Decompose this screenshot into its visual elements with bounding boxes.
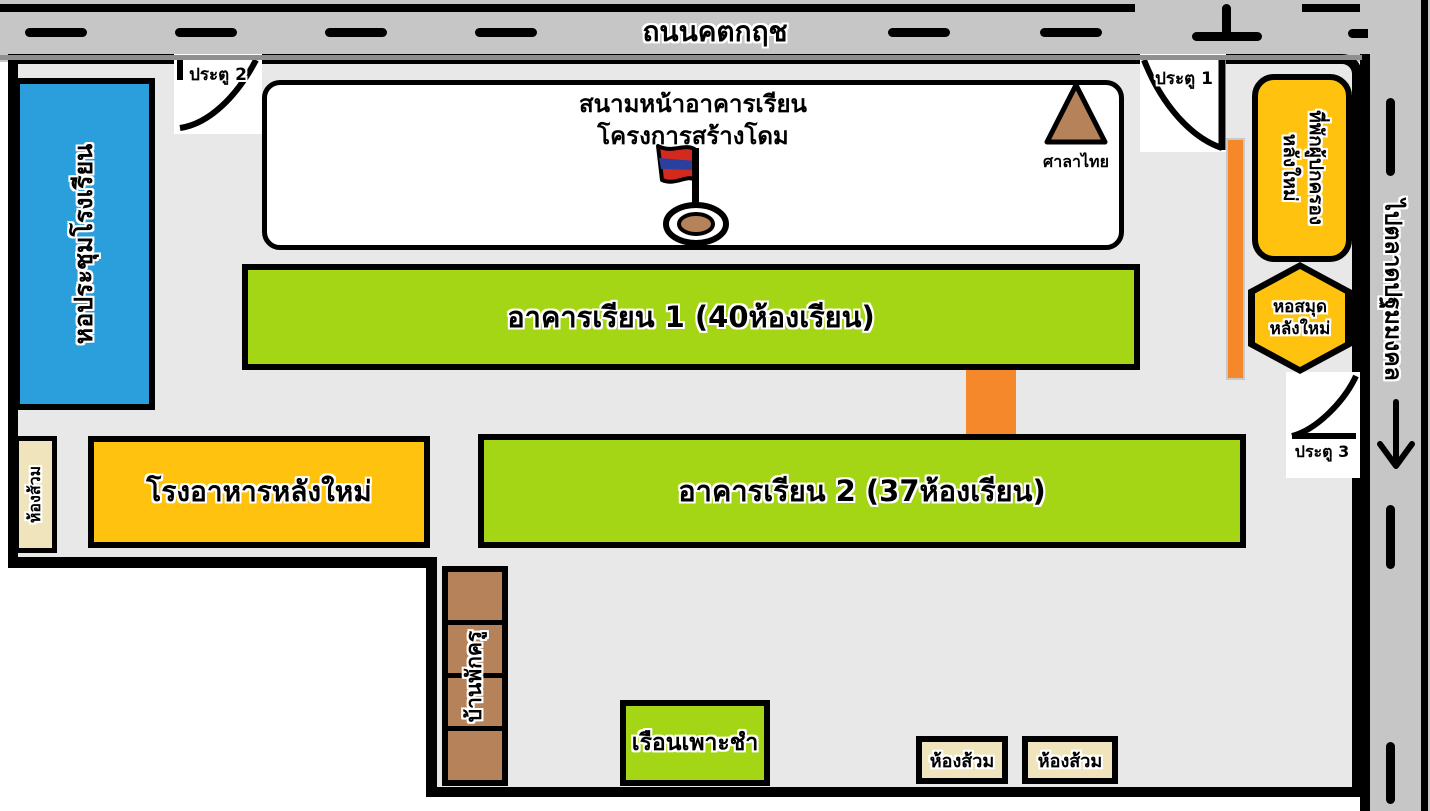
- toilet-bottom-right: ห้องส้วม: [1022, 736, 1118, 784]
- road-right-inner-border: [1360, 54, 1370, 811]
- parents-residence-label: ที่พักผู้ปกครอง หลังใหม่: [1276, 111, 1327, 226]
- parents-residence-line1: ที่พักผู้ปกครอง: [1302, 111, 1328, 226]
- flag-icon: [648, 136, 744, 246]
- lane-marking: [1222, 4, 1231, 36]
- library-line1: หอสมุด: [1270, 296, 1331, 318]
- parents-residence: ที่พักผู้ปกครอง หลังใหม่: [1252, 74, 1352, 262]
- road-right-name: ไปตลาดปฐมมงคล: [1364, 190, 1422, 390]
- down-arrow-icon: [1374, 398, 1418, 482]
- pavilion-label: ศาลาไทย: [1043, 150, 1109, 175]
- toilet-bottom-left: ห้องส้วม: [916, 736, 1008, 784]
- nursery: เรือนเพาะชำ: [620, 700, 770, 786]
- toilet-left: ห้องส้วม: [14, 436, 57, 553]
- road-bottom-edge: [0, 55, 1362, 60]
- teacher-house-name: บ้านพักครู: [448, 572, 502, 780]
- gate-2-name: ประตู 2: [176, 62, 260, 86]
- road-top-border: [0, 4, 1135, 12]
- field-name-line1: สนามหน้าอาคารเรียน: [262, 88, 1124, 118]
- teacher-house-label: บ้านพักครู: [459, 630, 492, 721]
- pavilion-name: ศาลาไทย: [1026, 150, 1126, 174]
- lane-marking: [1386, 742, 1395, 804]
- lane-marking: [1040, 28, 1102, 37]
- gate-3-name: ประตู 3: [1286, 440, 1358, 464]
- gate-3-label: ประตู 3: [1295, 440, 1349, 465]
- toilet-left-label: ห้องส้วม: [23, 466, 48, 523]
- gate-1-name: ประตู 1: [1144, 66, 1224, 90]
- library-fill: หอสมุด หลังใหม่: [1255, 269, 1345, 367]
- toilet-bottom-left-label: ห้องส้วม: [930, 746, 994, 775]
- lane-marking: [1386, 505, 1395, 569]
- nursery-label: เรือนเพาะชำ: [632, 725, 759, 761]
- connector-walkway: [966, 362, 1016, 442]
- teacher-house: บ้านพักครู: [442, 566, 508, 786]
- road-right-outer-border: [1421, 0, 1428, 811]
- boundary-step-top: [8, 557, 437, 568]
- auditorium: หอประชุมโรงเรียน: [14, 78, 155, 410]
- lane-marking: [325, 28, 387, 37]
- pavilion-icon: [1042, 80, 1110, 148]
- road-top-name: ถนนคตกฤช: [500, 12, 930, 52]
- boundary-step-right: [426, 557, 437, 797]
- library-line2: หลังใหม่: [1270, 318, 1331, 340]
- building-2-label: อาคารเรียน 2 (37ห้องเรียน): [678, 468, 1046, 514]
- road-right-label: ไปตลาดปฐมมงคล: [1375, 199, 1411, 380]
- outside-area: [0, 567, 431, 811]
- school-campus-map: ถนนคตกฤช ไปตลาดปฐมมงคล ประตู 2 ประตู 1: [0, 0, 1430, 811]
- parents-residence-line2: หลังใหม่: [1276, 111, 1302, 226]
- gate-2-label: ประตู 2: [189, 61, 247, 88]
- lane-marking: [175, 28, 237, 37]
- cafeteria: โรงอาหารหลังใหม่: [88, 436, 430, 548]
- library-label: หอสมุด หลังใหม่: [1270, 296, 1331, 340]
- toilet-bottom-right-label: ห้องส้วม: [1038, 746, 1102, 775]
- building-1-label: อาคารเรียน 1 (40ห้องเรียน): [507, 294, 875, 340]
- road-top-label: ถนนคตกฤช: [642, 10, 787, 54]
- walkway-strip: [1228, 140, 1243, 378]
- road-top-border: [1302, 4, 1360, 12]
- lane-marking: [25, 28, 87, 37]
- auditorium-label: หอประชุมโรงเรียน: [65, 144, 105, 344]
- lane-marking: [1386, 98, 1395, 176]
- building-1: อาคารเรียน 1 (40ห้องเรียน): [242, 264, 1140, 370]
- building-2: อาคารเรียน 2 (37ห้องเรียน): [478, 434, 1246, 548]
- cafeteria-label: โรงอาหารหลังใหม่: [146, 470, 371, 514]
- gate-1-label: ประตู 1: [1155, 65, 1213, 92]
